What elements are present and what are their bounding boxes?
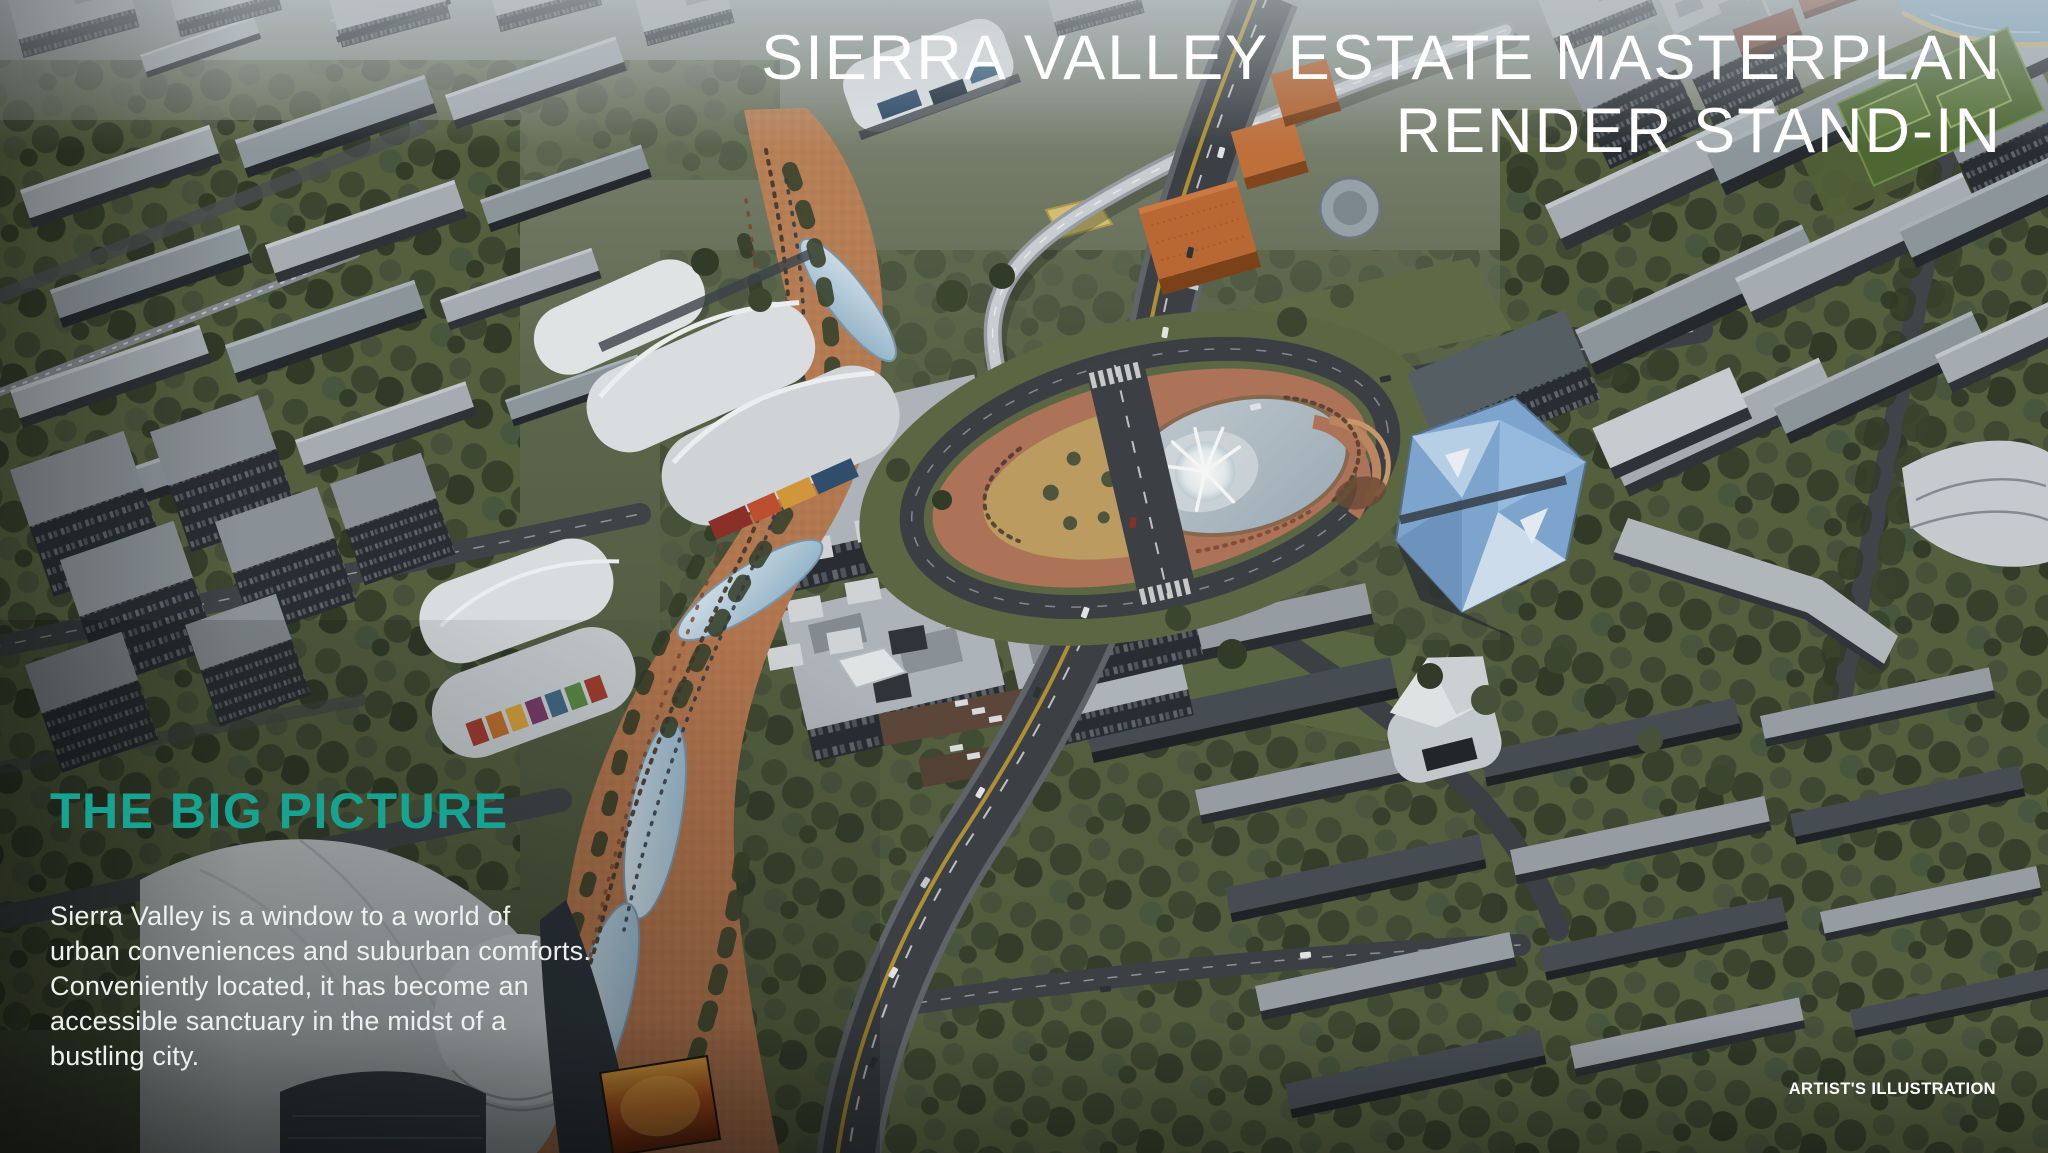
paragraph-line: urban conveniences and suburban comforts…: [50, 934, 591, 969]
artists-illustration-caption: ARTIST'S ILLUSTRATION: [1789, 1080, 1996, 1099]
paragraph-line: Conveniently located, it has become an: [50, 969, 591, 1004]
page-title-line-2: RENDER STAND-IN: [761, 95, 2002, 168]
paragraph-line: Sierra Valley is a window to a world of: [50, 899, 591, 934]
page-title: SIERRA VALLEY ESTATE MASTERPLAN RENDER S…: [761, 22, 2002, 168]
paragraph-line: bustling city.: [50, 1039, 591, 1074]
page-title-line-1: SIERRA VALLEY ESTATE MASTERPLAN: [761, 22, 2002, 95]
paragraph-line: accessible sanctuary in the midst of a: [50, 1004, 591, 1039]
intro-paragraph: Sierra Valley is a window to a world of …: [50, 899, 591, 1074]
section-heading: THE BIG PICTURE: [50, 782, 509, 840]
brochure-page: SIERRA VALLEY ESTATE MASTERPLAN RENDER S…: [0, 0, 2048, 1153]
